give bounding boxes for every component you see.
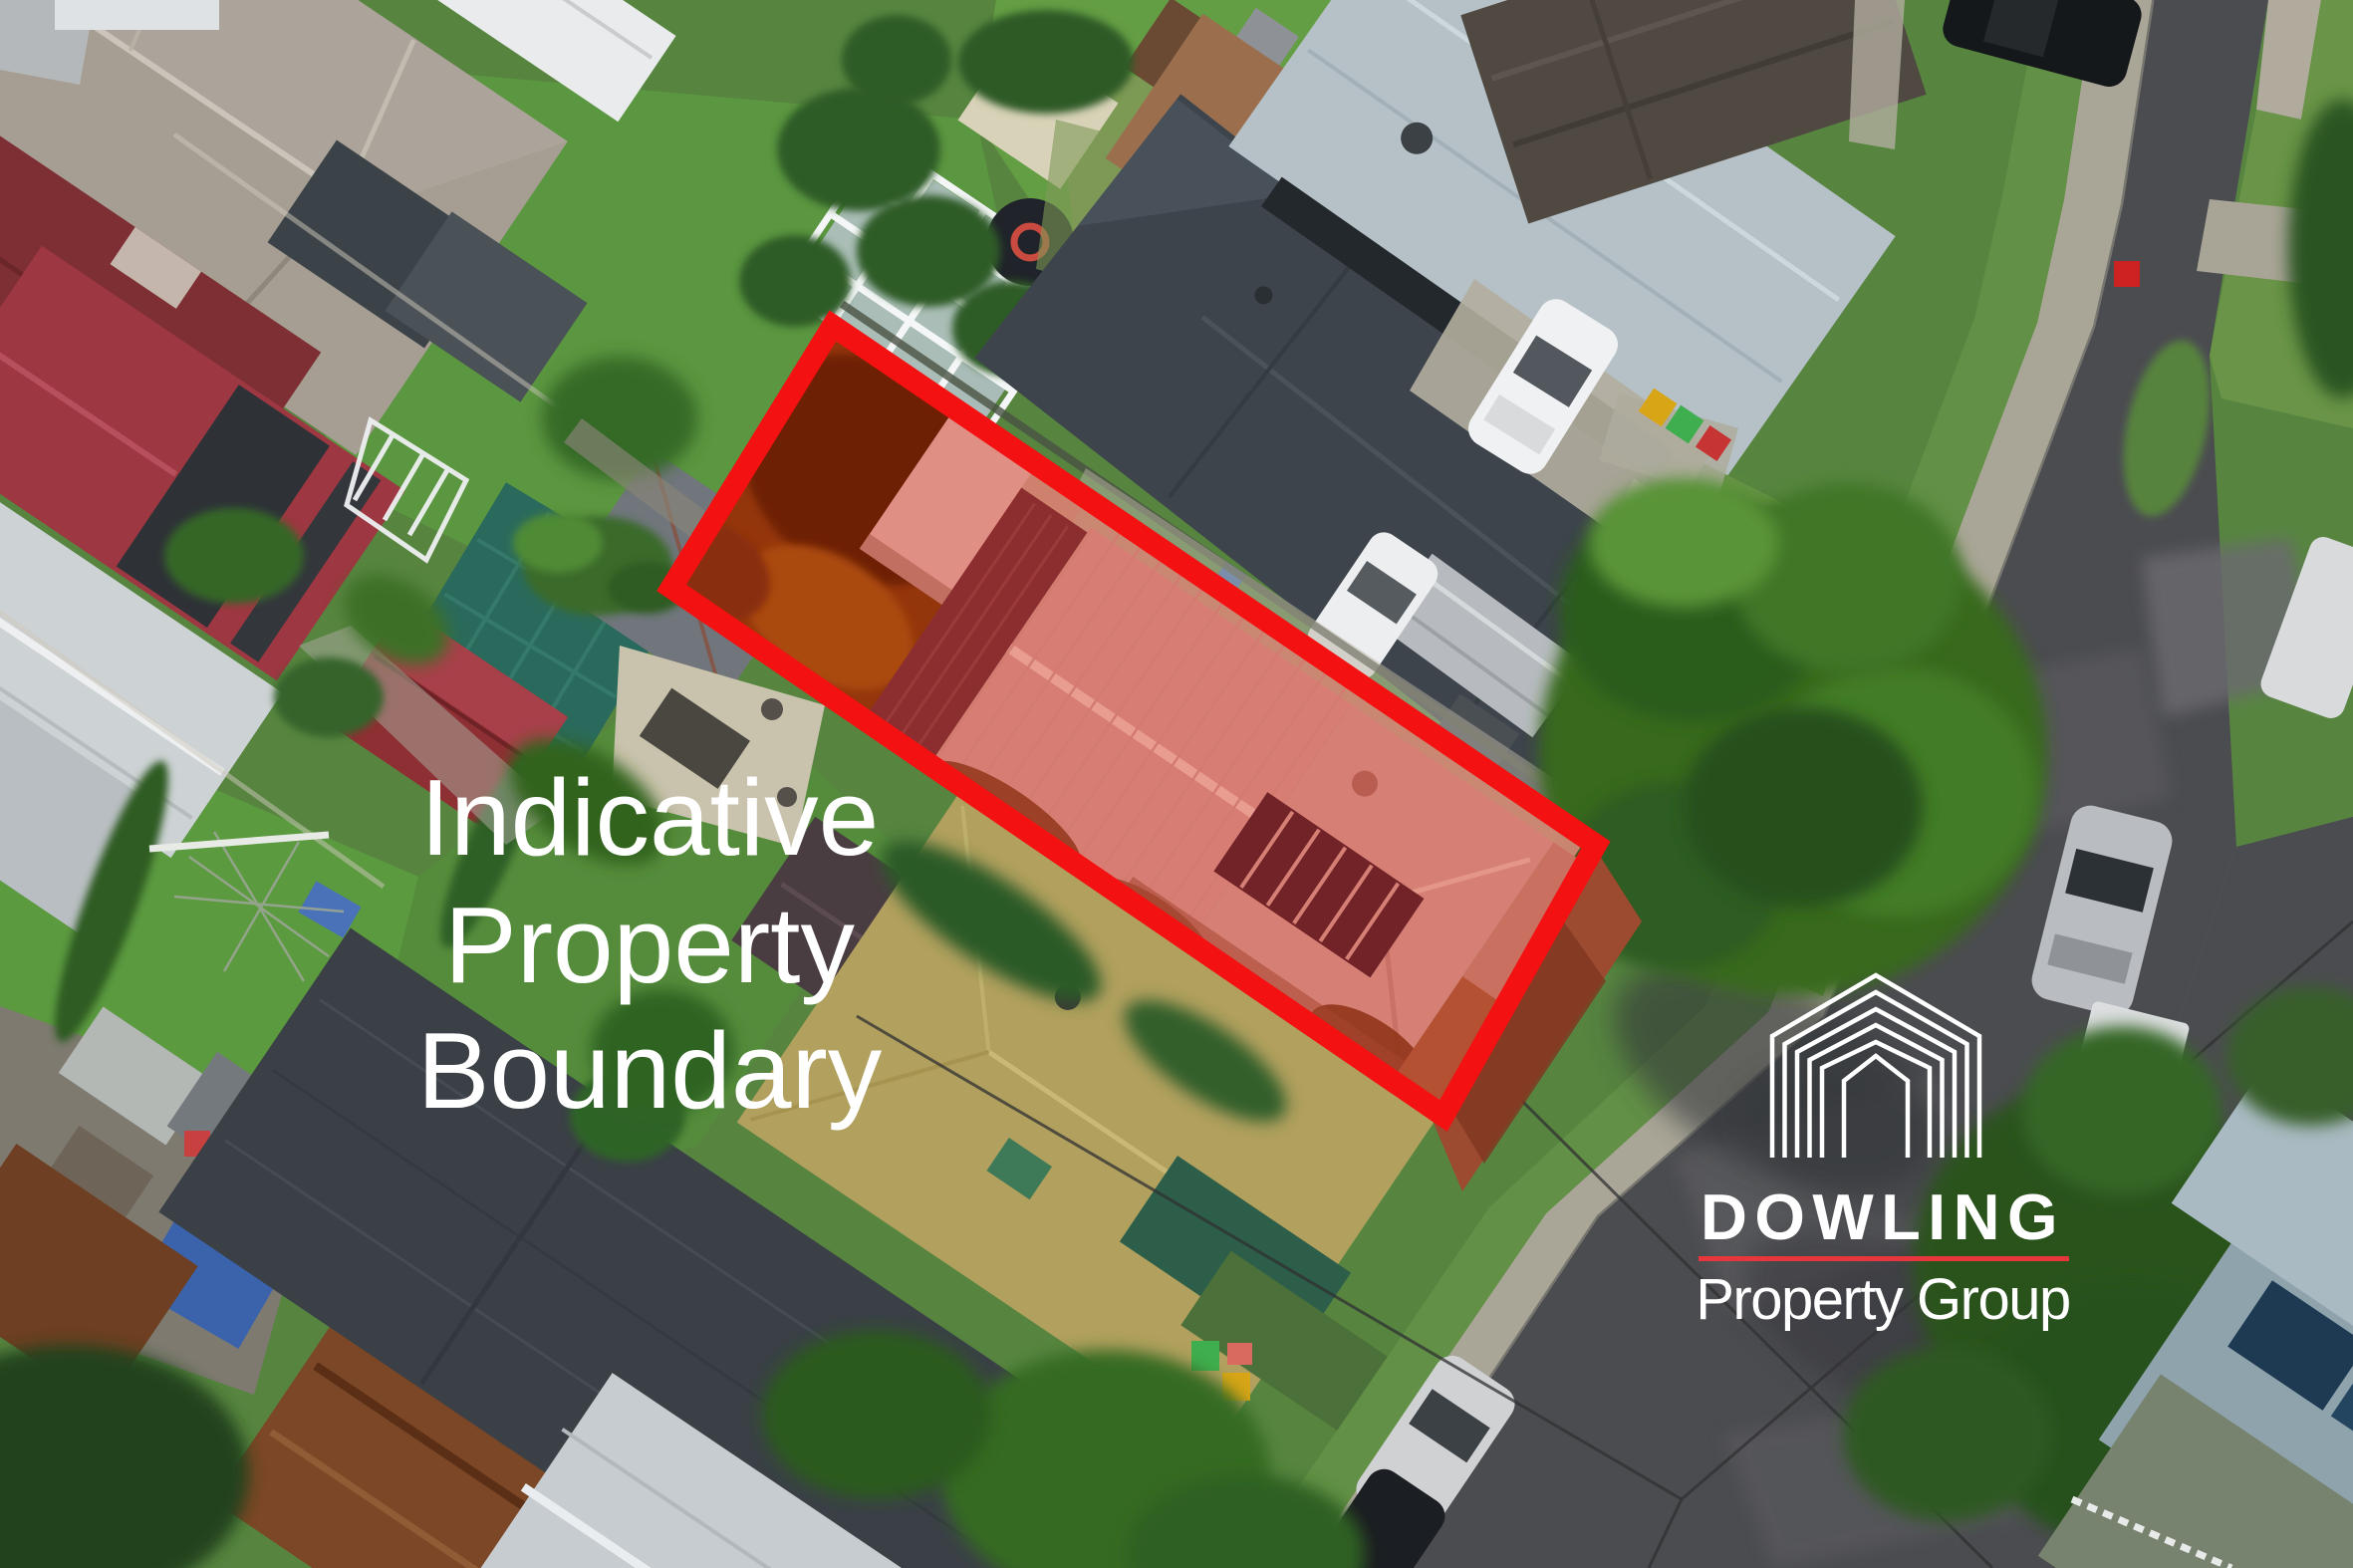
svg-text:Property Group: Property Group (1696, 1267, 2070, 1332)
svg-text:DOWLING: DOWLING (1700, 1180, 2065, 1253)
svg-text:Property: Property (444, 885, 855, 1006)
svg-text:Indicative: Indicative (420, 757, 879, 879)
svg-text:Boundary: Boundary (417, 1010, 883, 1132)
